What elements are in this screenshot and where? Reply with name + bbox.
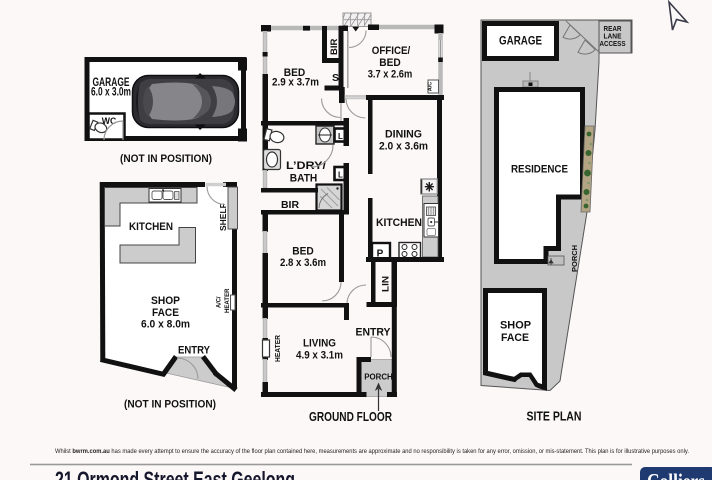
svg-text:BED: BED — [379, 57, 401, 69]
svg-text:3.7 x 2.6m: 3.7 x 2.6m — [368, 69, 413, 81]
svg-text:DINING: DINING — [385, 129, 422, 141]
svg-text:SHOP: SHOP — [151, 295, 180, 307]
svg-text:21 Ormond Street East Geelong: 21 Ormond Street East Geelong — [55, 467, 295, 480]
svg-text:GROUND FLOOR: GROUND FLOOR — [309, 410, 392, 424]
svg-text:RESIDENCE: RESIDENCE — [511, 164, 568, 176]
svg-text:L’DRY/: L’DRY/ — [286, 160, 326, 172]
svg-text:Whilst bwrm.com.au has made ev: Whilst bwrm.com.au has made every attemp… — [55, 449, 689, 455]
svg-text:BIR: BIR — [329, 39, 340, 56]
svg-text:SHOP: SHOP — [500, 320, 531, 332]
svg-text:HEATER: HEATER — [224, 288, 231, 313]
svg-text:GARAGE: GARAGE — [499, 36, 542, 48]
svg-text:A/C: A/C — [428, 82, 434, 92]
svg-text:LANE: LANE — [604, 34, 622, 41]
svg-text:L: L — [338, 132, 343, 141]
svg-text:4.9 x 3.1m: 4.9 x 3.1m — [296, 350, 343, 362]
svg-text:6.0 x 3.0m: 6.0 x 3.0m — [91, 87, 131, 99]
svg-text:OFFICE/: OFFICE/ — [372, 45, 411, 57]
svg-text:BATH: BATH — [290, 173, 318, 185]
svg-text:BIR: BIR — [281, 199, 300, 211]
svg-text:S: S — [332, 72, 339, 84]
svg-text:Colliers: Colliers — [647, 469, 705, 480]
svg-text:L: L — [338, 171, 343, 180]
svg-text:PORCH: PORCH — [364, 373, 393, 382]
svg-text:ACCESS: ACCESS — [600, 41, 626, 48]
svg-text:2.8 x 3.6m: 2.8 x 3.6m — [280, 257, 326, 269]
svg-text:(NOT IN POSITION): (NOT IN POSITION) — [124, 399, 216, 411]
svg-text:BED: BED — [292, 246, 314, 258]
svg-text:KITCHEN: KITCHEN — [129, 221, 173, 233]
svg-text:(NOT IN POSITION): (NOT IN POSITION) — [120, 153, 212, 165]
svg-text:2.0 x 3.6m: 2.0 x 3.6m — [379, 141, 428, 153]
svg-text:6.0 x 8.0m: 6.0 x 8.0m — [141, 319, 190, 331]
svg-text:KITCHEN: KITCHEN — [376, 217, 422, 229]
svg-text:ENTRY: ENTRY — [178, 345, 211, 357]
svg-text:LIN: LIN — [381, 276, 392, 292]
svg-text:FACE: FACE — [501, 332, 529, 344]
svg-text:SITE PLAN: SITE PLAN — [527, 410, 582, 424]
svg-text:HEATER: HEATER — [275, 335, 282, 362]
svg-text:PORCH: PORCH — [570, 245, 579, 272]
svg-text:LIVING: LIVING — [303, 338, 336, 350]
svg-text:FACE: FACE — [152, 307, 179, 319]
svg-text:REAR: REAR — [604, 26, 622, 33]
svg-text:A/C/: A/C/ — [216, 296, 223, 308]
svg-text:2.9 x 3.7m: 2.9 x 3.7m — [272, 77, 319, 89]
svg-text:SHELF: SHELF — [218, 203, 228, 231]
